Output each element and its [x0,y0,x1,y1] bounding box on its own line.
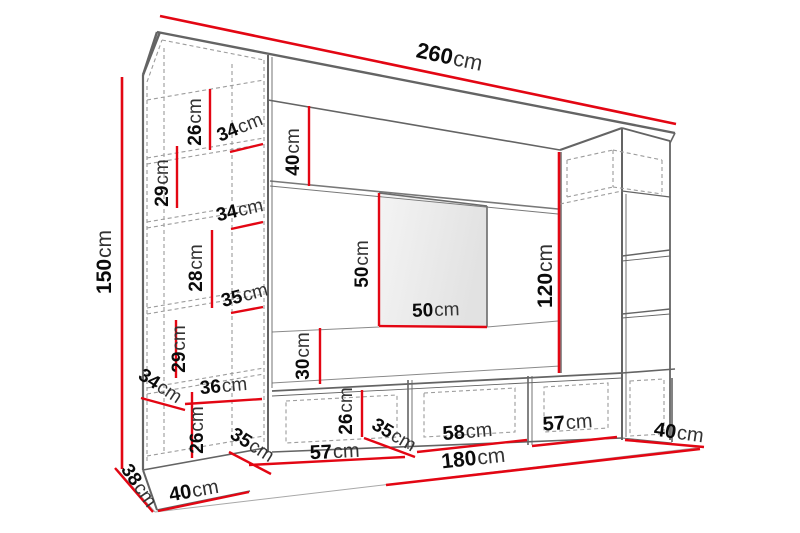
dim-band-height-label: 40cm [283,128,304,175]
dim-shelf1-height: 26cm [185,89,210,150]
dim-right-depth: 40cm [625,419,705,448]
dim-gap-height: 30cm [293,328,320,384]
dim-shelf1-width-label: 34cm [214,109,266,146]
dim-shelf1-width-line [230,144,263,152]
dim-shelf5-width-label: 36cm [199,374,248,399]
dim-panel-height: 50cm [352,193,379,326]
dim-shelf5-width-line [185,399,262,404]
dim-band-height: 40cm [283,106,309,186]
dim-total-width-line [160,16,676,124]
dim-shelf2-width: 34cm [214,195,265,229]
dim-shelf3-width: 35cm [219,279,270,313]
dim-shelf3-height: 28cm [186,230,212,308]
dim-panel-width-line [379,326,487,327]
dim-panel-height-label: 50cm [352,240,373,287]
dim-shelf5-width: 36cm [185,374,262,404]
dim-shelf3-height-label: 28cm [186,244,207,291]
dim-bench-height-label: 26cm [336,387,357,434]
right-cabinet-dashed [560,150,662,204]
dim-shelf2-width-label: 34cm [214,195,265,226]
dim-left-height: 150cm [93,77,122,469]
dim-shelf1-width: 34cm [214,109,266,152]
dim-bench-depth-mid: 35cm [364,414,420,457]
dim-shelf5-height-label: 26cm [187,406,208,453]
diagram-stage: 260cm150cm40cm26cm34cm29cm34cm28cm35cm29… [0,0,800,533]
dim-left-height-label: 150cm [93,230,116,294]
furniture-dimension-diagram: 260cm150cm40cm26cm34cm29cm34cm28cm35cm29… [0,0,800,533]
dim-gap-height-label: 30cm [293,332,314,379]
back-wall-lines [272,321,560,383]
dim-right-height-label: 120cm [534,244,557,308]
dim-shelf1-height-label: 26cm [185,98,206,145]
dim-total-width: 260cm [160,16,676,124]
right-cabinet-lines [560,128,670,440]
dim-right-height: 120cm [534,152,559,373]
dim-shelf4-height: 29cm [169,320,190,378]
dim-bench-comp2-label: 58cm [442,419,494,445]
dim-bench-depth-left-label: 35cm [226,424,277,467]
dim-bench-depth-left: 35cm [226,424,277,474]
dim-bench-height: 26cm [336,387,362,437]
dim-left-width-label: 40cm [167,476,220,506]
dim-bench-width-line [386,449,700,485]
dim-bench-comp3-label: 57cm [542,410,593,435]
dim-shelf4-height-label: 29cm [169,325,190,372]
dim-shelf2-width-line [231,222,263,229]
dim-shelf2-height-label: 29cm [152,159,173,206]
dim-bench-comp1-label: 57cm [309,440,360,465]
dim-panel-width-label: 50cm [412,299,460,322]
